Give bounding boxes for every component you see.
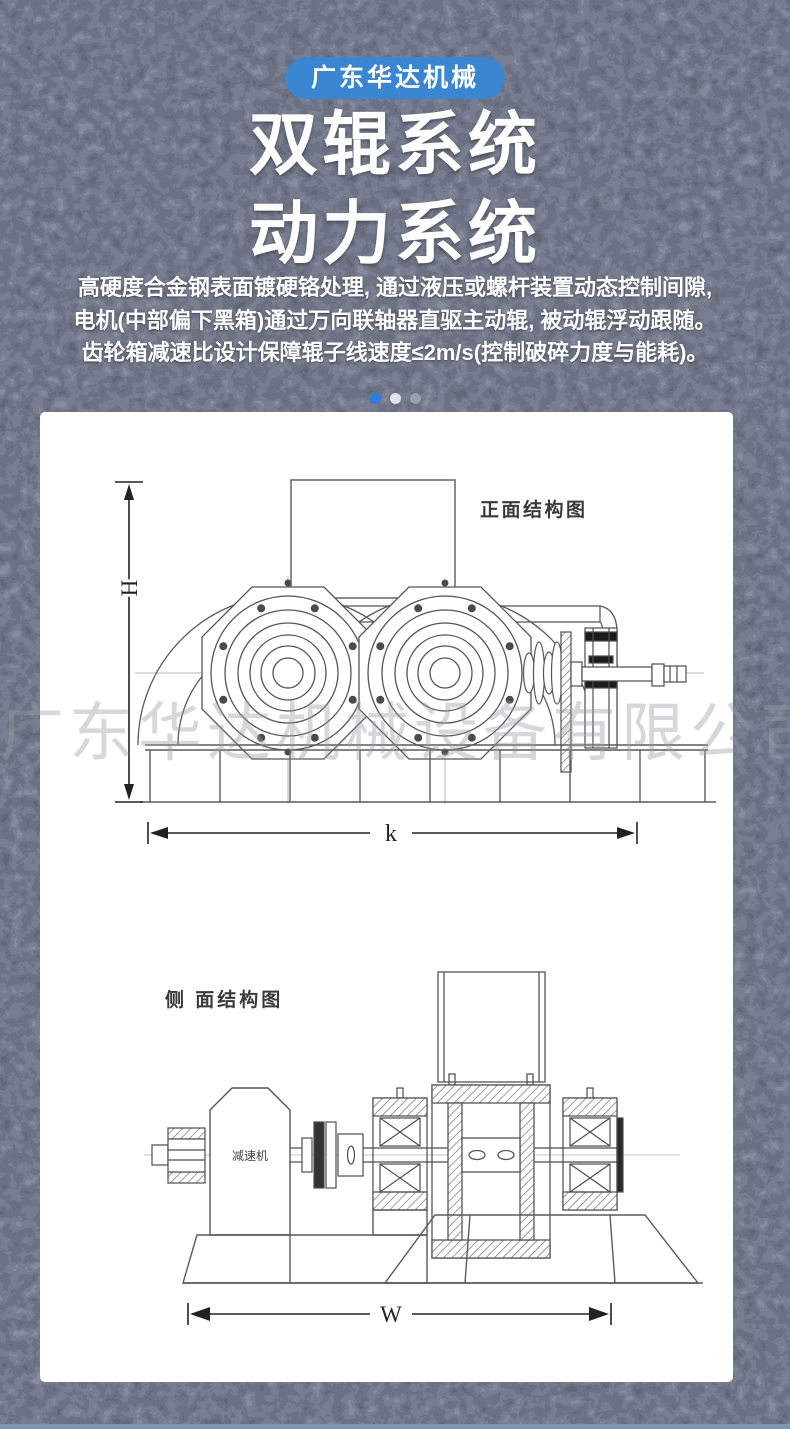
title-line-1: 双辊系统 xyxy=(0,100,790,189)
front-structure-diagram: H k 正面结构图 xyxy=(40,436,732,896)
description-line: 齿轮箱减速比设计保障辊子线速度≤2m/s(控制破碎力度与能耗)。 xyxy=(37,337,753,370)
product-description: 高硬度合金钢表面镀硬铬处理, 通过液压或螺杆装置动态控制间隙, 电机(中部偏下黑… xyxy=(37,272,753,370)
side-width-dim-label: W xyxy=(380,1302,402,1327)
side-pulley xyxy=(152,1128,205,1183)
brand-badge: 广东华达机械 xyxy=(285,57,505,99)
bottom-accent-bar xyxy=(0,1424,790,1429)
diagram-card: H k 正面结构图 xyxy=(40,412,733,1382)
side-structure-diagram: 减速机 xyxy=(40,948,732,1358)
side-width-dimension: W xyxy=(188,1302,611,1327)
front-width-dim-label: k xyxy=(385,821,397,847)
page-title: 双辊系统 动力系统 xyxy=(0,100,790,278)
description-line: 高硬度合金钢表面镀硬铬处理, 通过液压或螺杆装置动态控制间隙, xyxy=(37,272,753,305)
reducer-label: 减速机 xyxy=(232,1149,268,1163)
title-line-2: 动力系统 xyxy=(0,189,790,278)
side-reducer: 减速机 xyxy=(210,1088,290,1235)
carousel-dot-light[interactable] xyxy=(390,393,401,404)
side-left-bearing xyxy=(373,1088,427,1210)
side-view-title: 侧 面结构图 xyxy=(165,988,283,1011)
carousel-dot-inactive[interactable] xyxy=(410,393,421,404)
description-line: 电机(中部偏下黑箱)通过万向联轴器直驱主动辊, 被动辊浮动跟随。 xyxy=(37,305,753,338)
side-right-bearing xyxy=(563,1088,623,1210)
front-view-title: 正面结构图 xyxy=(480,498,588,521)
carousel-dot-active[interactable] xyxy=(370,393,381,404)
promo-page: { "page": { "background_color": "#2b3243… xyxy=(0,0,790,1429)
front-height-dimension: H xyxy=(115,482,143,802)
front-width-dimension: k xyxy=(148,821,637,847)
height-dim-label: H xyxy=(117,580,142,597)
carousel-dots xyxy=(0,393,790,404)
